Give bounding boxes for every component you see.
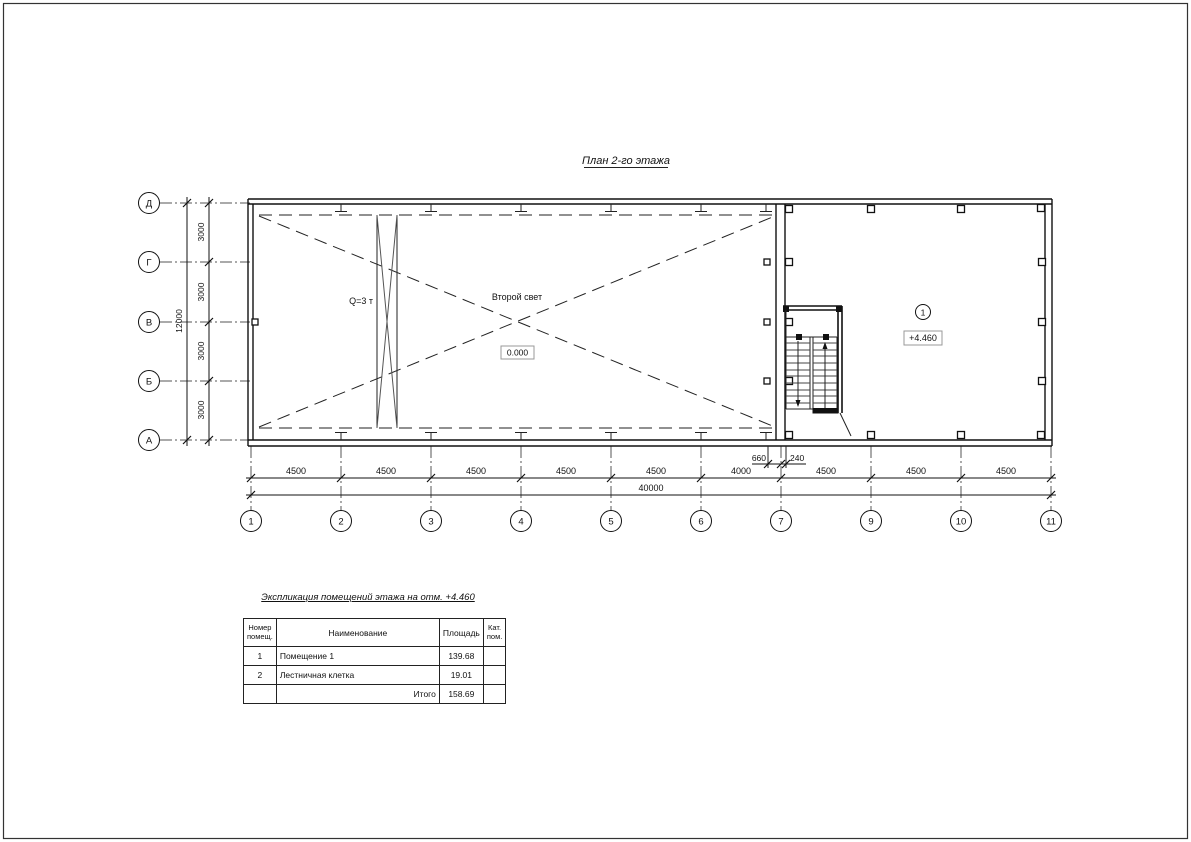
table-header-row: Номер помещ. Наименование Площадь Кат. п… bbox=[244, 619, 506, 647]
dim-bottom-seg-8: 4500 bbox=[996, 466, 1016, 476]
axis-row-2: В bbox=[146, 318, 152, 329]
dim-bottom-seg-5: 4000 bbox=[731, 466, 751, 476]
row-axis-bubbles: Д Г В Б А bbox=[139, 193, 160, 451]
cell-room-number: 1 bbox=[244, 647, 277, 666]
axis-col-2: 3 bbox=[428, 517, 433, 528]
floor-opening bbox=[259, 215, 775, 428]
total-label: Итого bbox=[276, 685, 439, 704]
axis-col-4: 5 bbox=[608, 517, 613, 528]
dim-detail-right: 240 bbox=[790, 453, 804, 463]
axis-col-0: 1 bbox=[248, 517, 253, 528]
axis-row-3: Б bbox=[146, 377, 152, 388]
dim-bottom-total: 40000 bbox=[638, 483, 663, 493]
bottom-dimensions: 4500 4500 4500 4500 4500 4000 4500 4500 … bbox=[246, 446, 1056, 499]
dim-left-seg-3: 3000 bbox=[196, 400, 206, 419]
dim-bottom-seg-1: 4500 bbox=[376, 466, 396, 476]
header-category: Кат. пом. bbox=[483, 619, 505, 647]
building-walls bbox=[248, 199, 1052, 446]
dim-left-total: 12000 bbox=[174, 309, 184, 333]
drawing-sheet: План 2-го этажа bbox=[0, 0, 1191, 842]
axis-col-8: 10 bbox=[956, 517, 967, 528]
level-floor-label: +4.460 bbox=[909, 333, 937, 343]
dim-bottom-seg-3: 4500 bbox=[556, 466, 576, 476]
floor-plan-drawing: План 2-го этажа bbox=[0, 0, 1191, 842]
sheet-frame bbox=[4, 4, 1188, 839]
room-number-label: 1 bbox=[921, 308, 926, 318]
cell-empty bbox=[483, 685, 505, 704]
total-area: 158.69 bbox=[439, 685, 483, 704]
dim-detail-left: 660 bbox=[752, 453, 766, 463]
dim-left-seg-1: 3000 bbox=[196, 282, 206, 301]
partition-wall bbox=[776, 204, 785, 440]
crane-symbol: Q=3 т bbox=[349, 215, 397, 428]
stair-direction-arrows bbox=[796, 341, 828, 408]
dim-bottom-seg-4: 4500 bbox=[646, 466, 666, 476]
plan-title-text: План 2-го этажа bbox=[582, 155, 670, 167]
axis-col-9: 11 bbox=[1046, 517, 1056, 528]
table-total-row: Итого 158.69 bbox=[244, 685, 506, 704]
staircase bbox=[783, 306, 851, 436]
plan-title: План 2-го этажа bbox=[582, 155, 670, 168]
door-leaf bbox=[840, 413, 851, 436]
axis-col-6: 7 bbox=[778, 517, 783, 528]
table-row: 1 Помещение 1 139.68 bbox=[244, 647, 506, 666]
axis-col-1: 2 bbox=[338, 517, 343, 528]
cell-room-number: 2 bbox=[244, 666, 277, 685]
axis-col-3: 4 bbox=[518, 517, 523, 528]
dim-left-seg-0: 3000 bbox=[196, 222, 206, 241]
cell-room-category bbox=[483, 666, 505, 685]
crane-capacity-label: Q=3 т bbox=[349, 296, 373, 306]
steel-columns bbox=[335, 204, 772, 440]
axis-col-5: 6 bbox=[698, 517, 703, 528]
cell-empty bbox=[244, 685, 277, 704]
level-ground-label: 0.000 bbox=[507, 348, 529, 358]
axis-row-0: Д bbox=[146, 199, 153, 210]
plan-labels: Второй свет 0.000 1 +4.460 bbox=[492, 292, 942, 359]
axis-row-1: Г bbox=[146, 258, 151, 269]
header-area: Площадь bbox=[439, 619, 483, 647]
table-row: 2 Лестничная клетка 19.01 bbox=[244, 666, 506, 685]
cell-room-area: 139.68 bbox=[439, 647, 483, 666]
axis-col-7: 9 bbox=[868, 517, 873, 528]
header-name: Наименование bbox=[276, 619, 439, 647]
stair-landing-edge bbox=[813, 409, 838, 414]
explication-title: Экспликация помещений этажа на отм. +4.4… bbox=[243, 592, 493, 603]
col-axis-bubbles: 1 2 3 4 5 6 7 9 10 11 bbox=[241, 511, 1062, 532]
cell-room-area: 19.01 bbox=[439, 666, 483, 685]
axis-lines bbox=[160, 203, 1051, 511]
header-room-number: Номер помещ. bbox=[244, 619, 277, 647]
cell-room-category bbox=[483, 647, 505, 666]
wall-pilasters bbox=[252, 259, 770, 384]
dim-left-seg-2: 3000 bbox=[196, 341, 206, 360]
dim-bottom-seg-6: 4500 bbox=[816, 466, 836, 476]
explication-table: Номер помещ. Наименование Площадь Кат. п… bbox=[243, 618, 506, 704]
dim-bottom-seg-2: 4500 bbox=[466, 466, 486, 476]
void-label: Второй свет bbox=[492, 292, 542, 302]
cell-room-name: Помещение 1 bbox=[276, 647, 439, 666]
cell-room-name: Лестничная клетка bbox=[276, 666, 439, 685]
axis-row-4: А bbox=[146, 436, 153, 447]
dim-bottom-seg-7: 4500 bbox=[906, 466, 926, 476]
dim-bottom-seg-0: 4500 bbox=[286, 466, 306, 476]
